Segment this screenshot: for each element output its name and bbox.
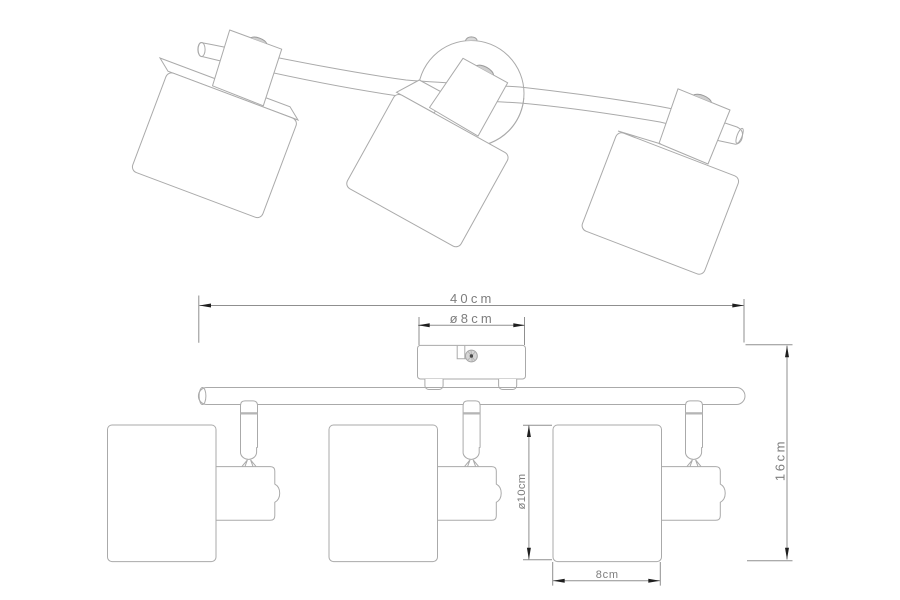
svg-text:ø8cm: ø8cm — [450, 311, 495, 326]
svg-text:8cm: 8cm — [596, 569, 619, 581]
svg-text:16cm: 16cm — [772, 439, 787, 481]
svg-text:40cm: 40cm — [450, 291, 495, 306]
svg-text:ø10cm: ø10cm — [516, 473, 528, 509]
